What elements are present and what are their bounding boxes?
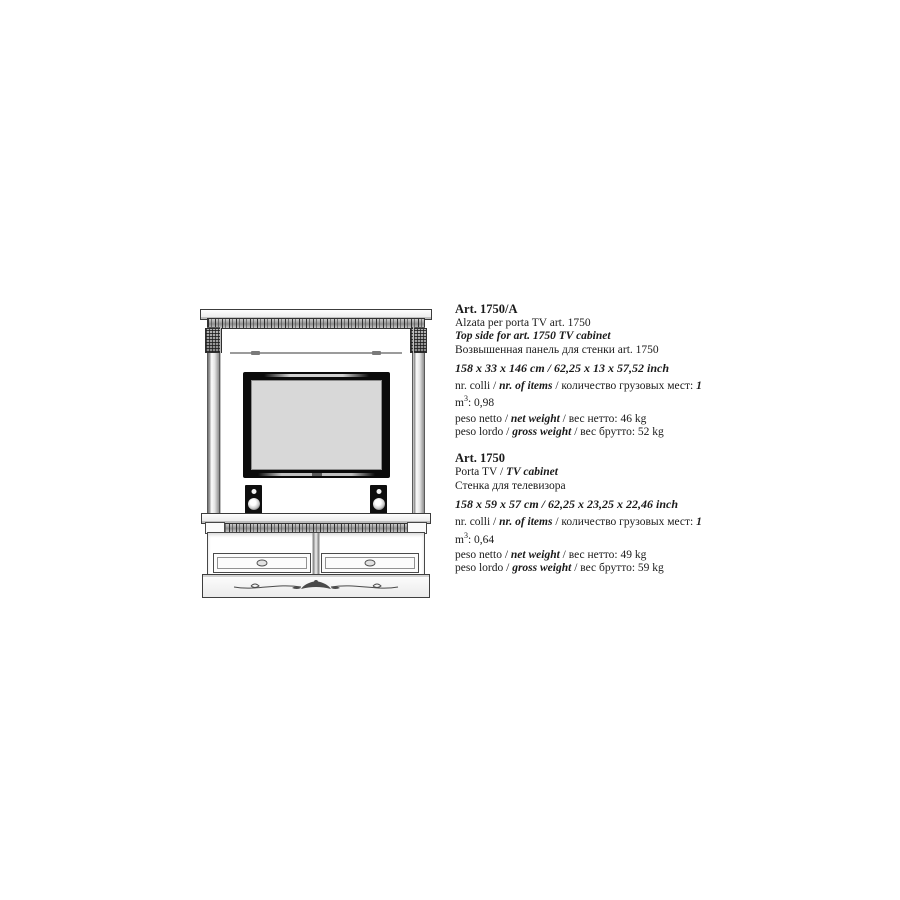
gross-weight-line: peso lordo / gross weight / вес брутто: … — [455, 562, 755, 575]
items-label-en: nr. of items — [499, 380, 552, 392]
shelf-bracket-left — [251, 351, 260, 355]
spec-block-1750a: Art. 1750/A Alzata per porta TV art. 175… — [455, 302, 755, 439]
gross-weight-line: peso lordo / gross weight / вес брутто: … — [455, 426, 755, 439]
items-value: 1 — [696, 380, 702, 392]
items-label-en: nr. of items — [499, 516, 552, 528]
net-weight-line: peso netto / net weight / вес нетто: 46 … — [455, 413, 755, 426]
tv — [243, 372, 390, 478]
product-name-en: TV cabinet — [506, 466, 558, 478]
product-name-it: Alzata per porta TV art. 1750 — [455, 317, 755, 330]
net-label-ru: вес нетто: — [569, 413, 621, 425]
drawer-right — [321, 553, 419, 573]
gross-sep: / — [571, 426, 580, 438]
gross-label-en: gross weight — [512, 562, 571, 574]
product-dimensions: 158 x 33 x 146 cm / 62,25 x 13 x 57,52 i… — [455, 362, 755, 375]
drawer-left — [213, 553, 311, 573]
speaker-woofer — [248, 498, 260, 510]
speaker-tweeter — [376, 489, 381, 494]
stand-body — [207, 532, 425, 576]
net-label-it: peso netto / — [455, 549, 511, 561]
tv-logo — [312, 473, 322, 476]
tv-screen — [251, 380, 382, 470]
drawer-handle — [257, 560, 268, 567]
gross-label-ru: вес брутто: — [580, 562, 638, 574]
speaker-woofer — [373, 498, 385, 510]
gross-value: 59 kg — [638, 562, 664, 574]
volume-label: m — [455, 397, 464, 409]
volume-value: 0,64 — [474, 534, 494, 546]
product-specs: Art. 1750/A Alzata per porta TV art. 175… — [455, 302, 755, 575]
product-dimensions: 158 x 59 x 57 cm / 62,25 x 23,25 x 22,46… — [455, 498, 755, 511]
product-name-sep: / — [497, 466, 506, 478]
items-label-it: nr. colli / — [455, 516, 499, 528]
gross-label-it: peso lordo / — [455, 562, 512, 574]
product-code: Art. 1750 — [455, 451, 755, 465]
tv-wall-unit-drawing — [200, 309, 432, 597]
product-name-ru: Возвышенная панель для стенки art. 1750 — [455, 344, 755, 357]
net-label-ru: вес нетто: — [569, 549, 621, 561]
drawer-handle — [365, 560, 376, 567]
glass-shelf — [230, 352, 402, 354]
net-value: 49 kg — [620, 549, 646, 561]
items-label-ru: количество грузовых мест: — [561, 380, 696, 392]
items-label-it: nr. colli / — [455, 380, 499, 392]
product-name-it: Porta TV — [455, 466, 497, 478]
product-name-line: Porta TV / TV cabinet — [455, 466, 755, 479]
speaker-right — [370, 485, 387, 515]
product-code: Art. 1750/A — [455, 302, 755, 316]
shelf-bracket-right — [372, 351, 381, 355]
product-name-ru: Стенка для телевизора — [455, 480, 755, 493]
speaker-tweeter — [251, 489, 256, 494]
gross-label-it: peso lordo / — [455, 426, 512, 438]
items-line: nr. colli / nr. of items / количество гр… — [455, 380, 755, 393]
net-sep: / — [560, 413, 569, 425]
volume-line: m3: 0,98 — [455, 397, 755, 410]
net-label-en: net weight — [511, 549, 560, 561]
items-label-ru: количество грузовых мест: — [561, 516, 696, 528]
net-sep: / — [560, 549, 569, 561]
net-label-it: peso netto / — [455, 413, 511, 425]
gross-sep: / — [571, 562, 580, 574]
gross-label-en: gross weight — [512, 426, 571, 438]
plinth-carving-ornament — [231, 579, 401, 593]
items-value: 1 — [696, 516, 702, 528]
items-line: nr. colli / nr. of items / количество гр… — [455, 516, 755, 529]
plinth-base — [202, 574, 430, 598]
net-weight-line: peso netto / net weight / вес нетто: 49 … — [455, 549, 755, 562]
gross-label-ru: вес брутто: — [580, 426, 638, 438]
net-label-en: net weight — [511, 413, 560, 425]
spec-block-1750: Art. 1750 Porta TV / TV cabinet Стенка д… — [455, 451, 755, 575]
volume-value: 0,98 — [474, 397, 494, 409]
volume-line: m3: 0,64 — [455, 534, 755, 547]
stand-center-divider — [313, 533, 320, 575]
gross-value: 52 kg — [638, 426, 664, 438]
product-name-en: Top side for art. 1750 TV cabinet — [455, 330, 755, 343]
volume-label: m — [455, 534, 464, 546]
speaker-left — [245, 485, 262, 515]
net-value: 46 kg — [620, 413, 646, 425]
column-left — [207, 327, 220, 515]
